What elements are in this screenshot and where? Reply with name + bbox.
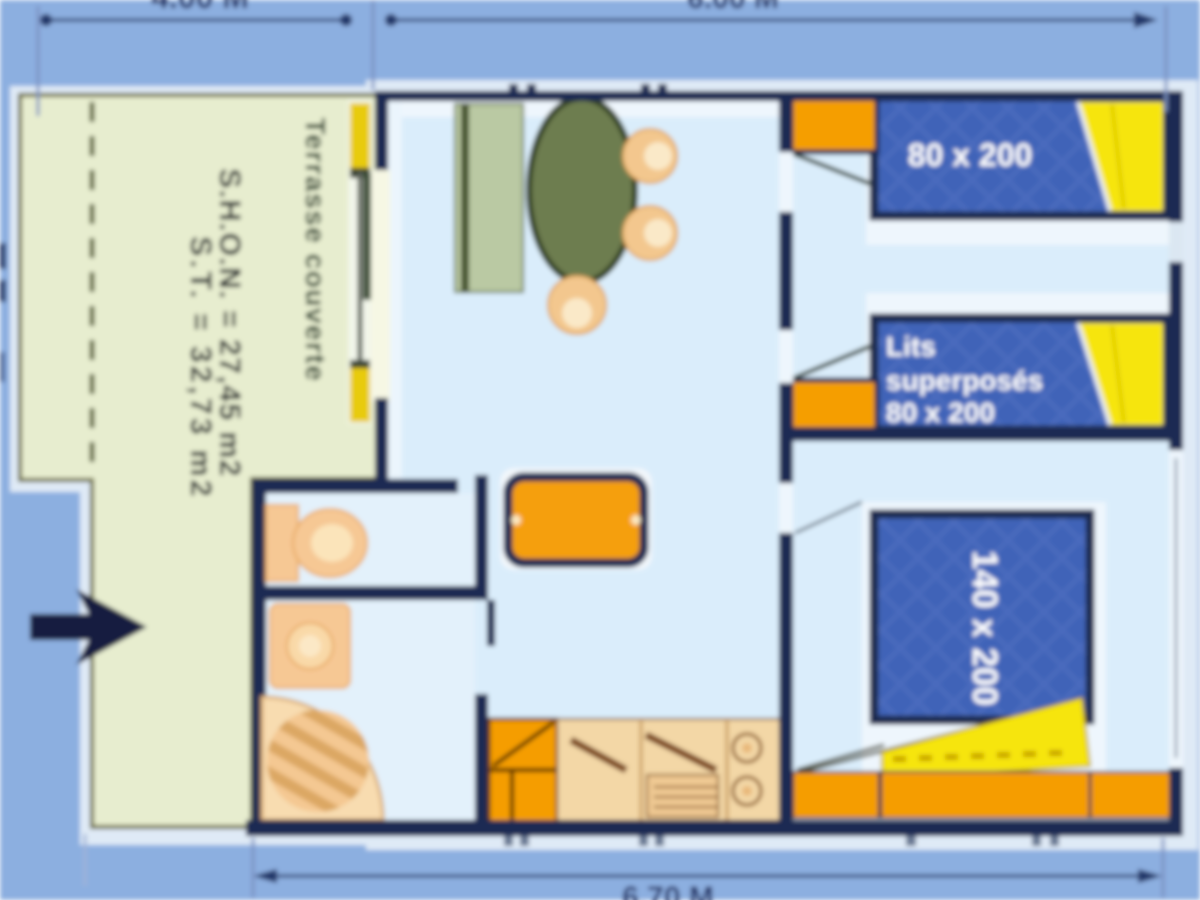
svg-text:superposés: superposés: [886, 365, 1043, 396]
svg-text:Terrasse couverte: Terrasse couverte: [300, 118, 331, 383]
svg-text:4.00 M: 4.00 M: [151, 0, 249, 15]
svg-text:80 x 200: 80 x 200: [908, 137, 1033, 173]
svg-text:6.00 M: 6.00 M: [687, 0, 779, 15]
svg-text:S.T. = 32,73 m2: S.T. = 32,73 m2: [184, 236, 217, 500]
svg-text:140 x 200: 140 x 200: [965, 550, 1004, 706]
svg-text:80 x 200: 80 x 200: [886, 397, 995, 428]
svg-text:Lits: Lits: [886, 331, 936, 362]
svg-text:6.70 M: 6.70 M: [622, 881, 714, 900]
